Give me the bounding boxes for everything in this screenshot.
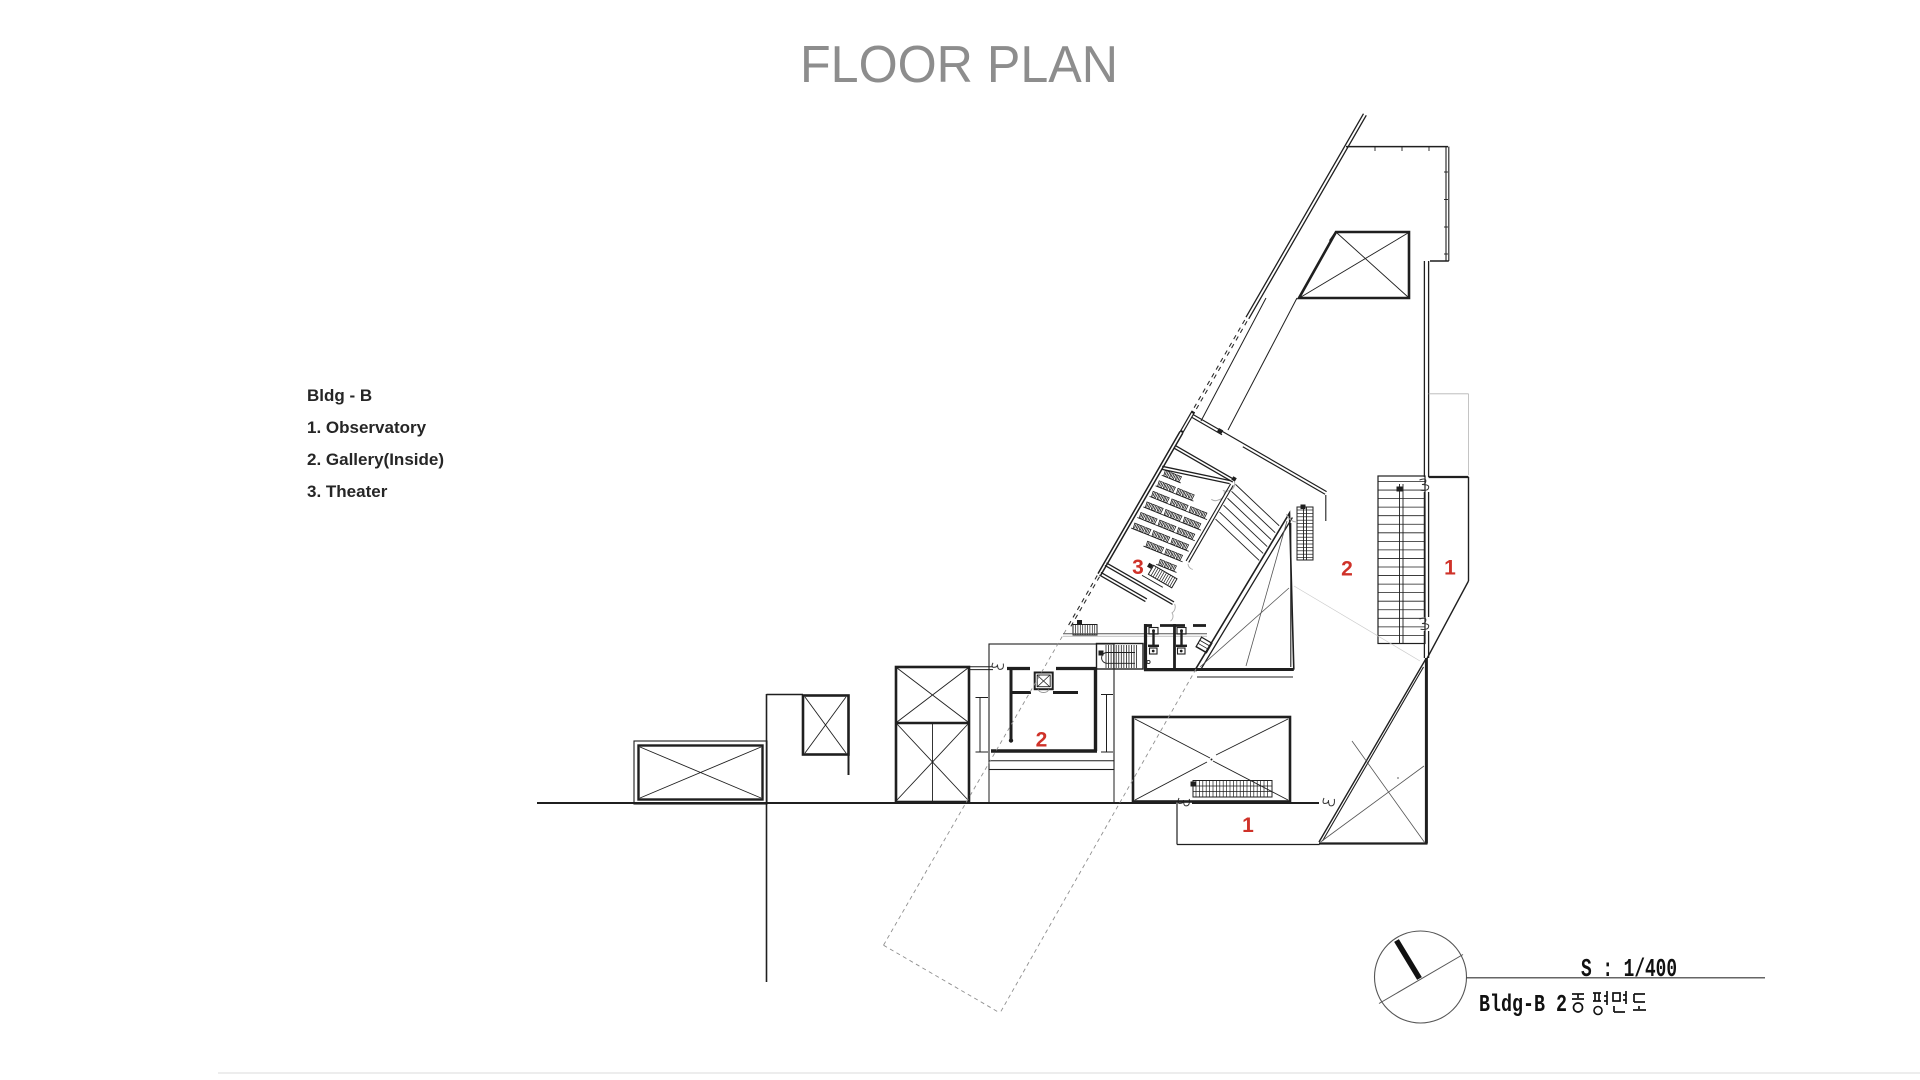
svg-text:S : 1/400: S : 1/400	[1581, 954, 1677, 984]
svg-text:3: 3	[1132, 556, 1144, 579]
svg-text:2. Gallery(Inside): 2. Gallery(Inside)	[307, 450, 444, 469]
svg-text:1: 1	[1242, 814, 1254, 837]
svg-text:Bldg - B: Bldg - B	[307, 386, 372, 405]
svg-text:2: 2	[1341, 558, 1353, 581]
svg-text:2: 2	[1036, 729, 1048, 752]
svg-text:FLOOR PLAN: FLOOR PLAN	[800, 36, 1118, 94]
svg-text:Bldg-B 2: Bldg-B 2	[1479, 992, 1567, 1019]
svg-text:3. Theater: 3. Theater	[307, 482, 388, 501]
svg-text:1. Observatory: 1. Observatory	[307, 418, 427, 437]
svg-text:1: 1	[1444, 557, 1456, 580]
